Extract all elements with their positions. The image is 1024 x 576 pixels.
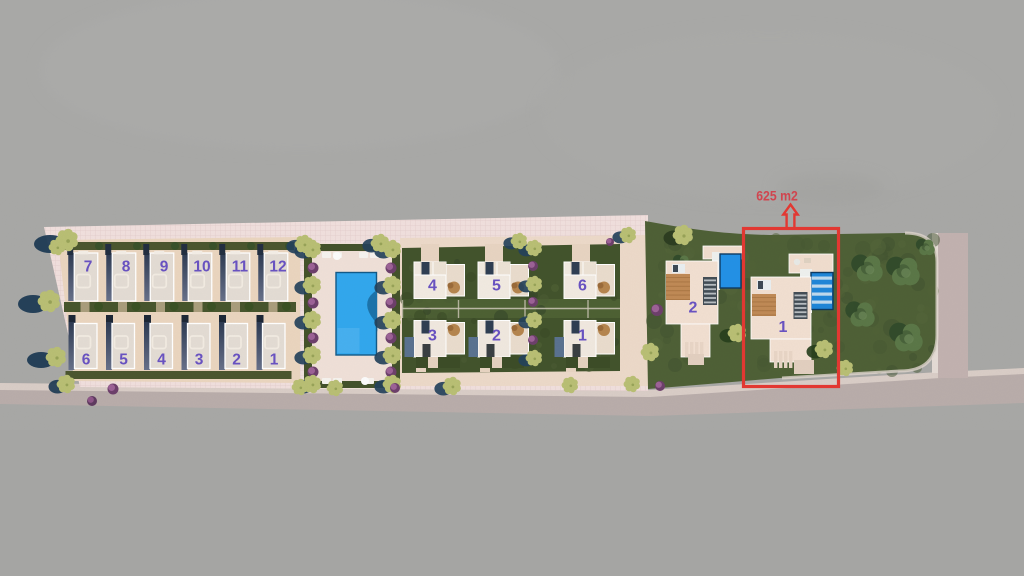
svg-text:625 m2: 625 m2: [756, 188, 798, 204]
